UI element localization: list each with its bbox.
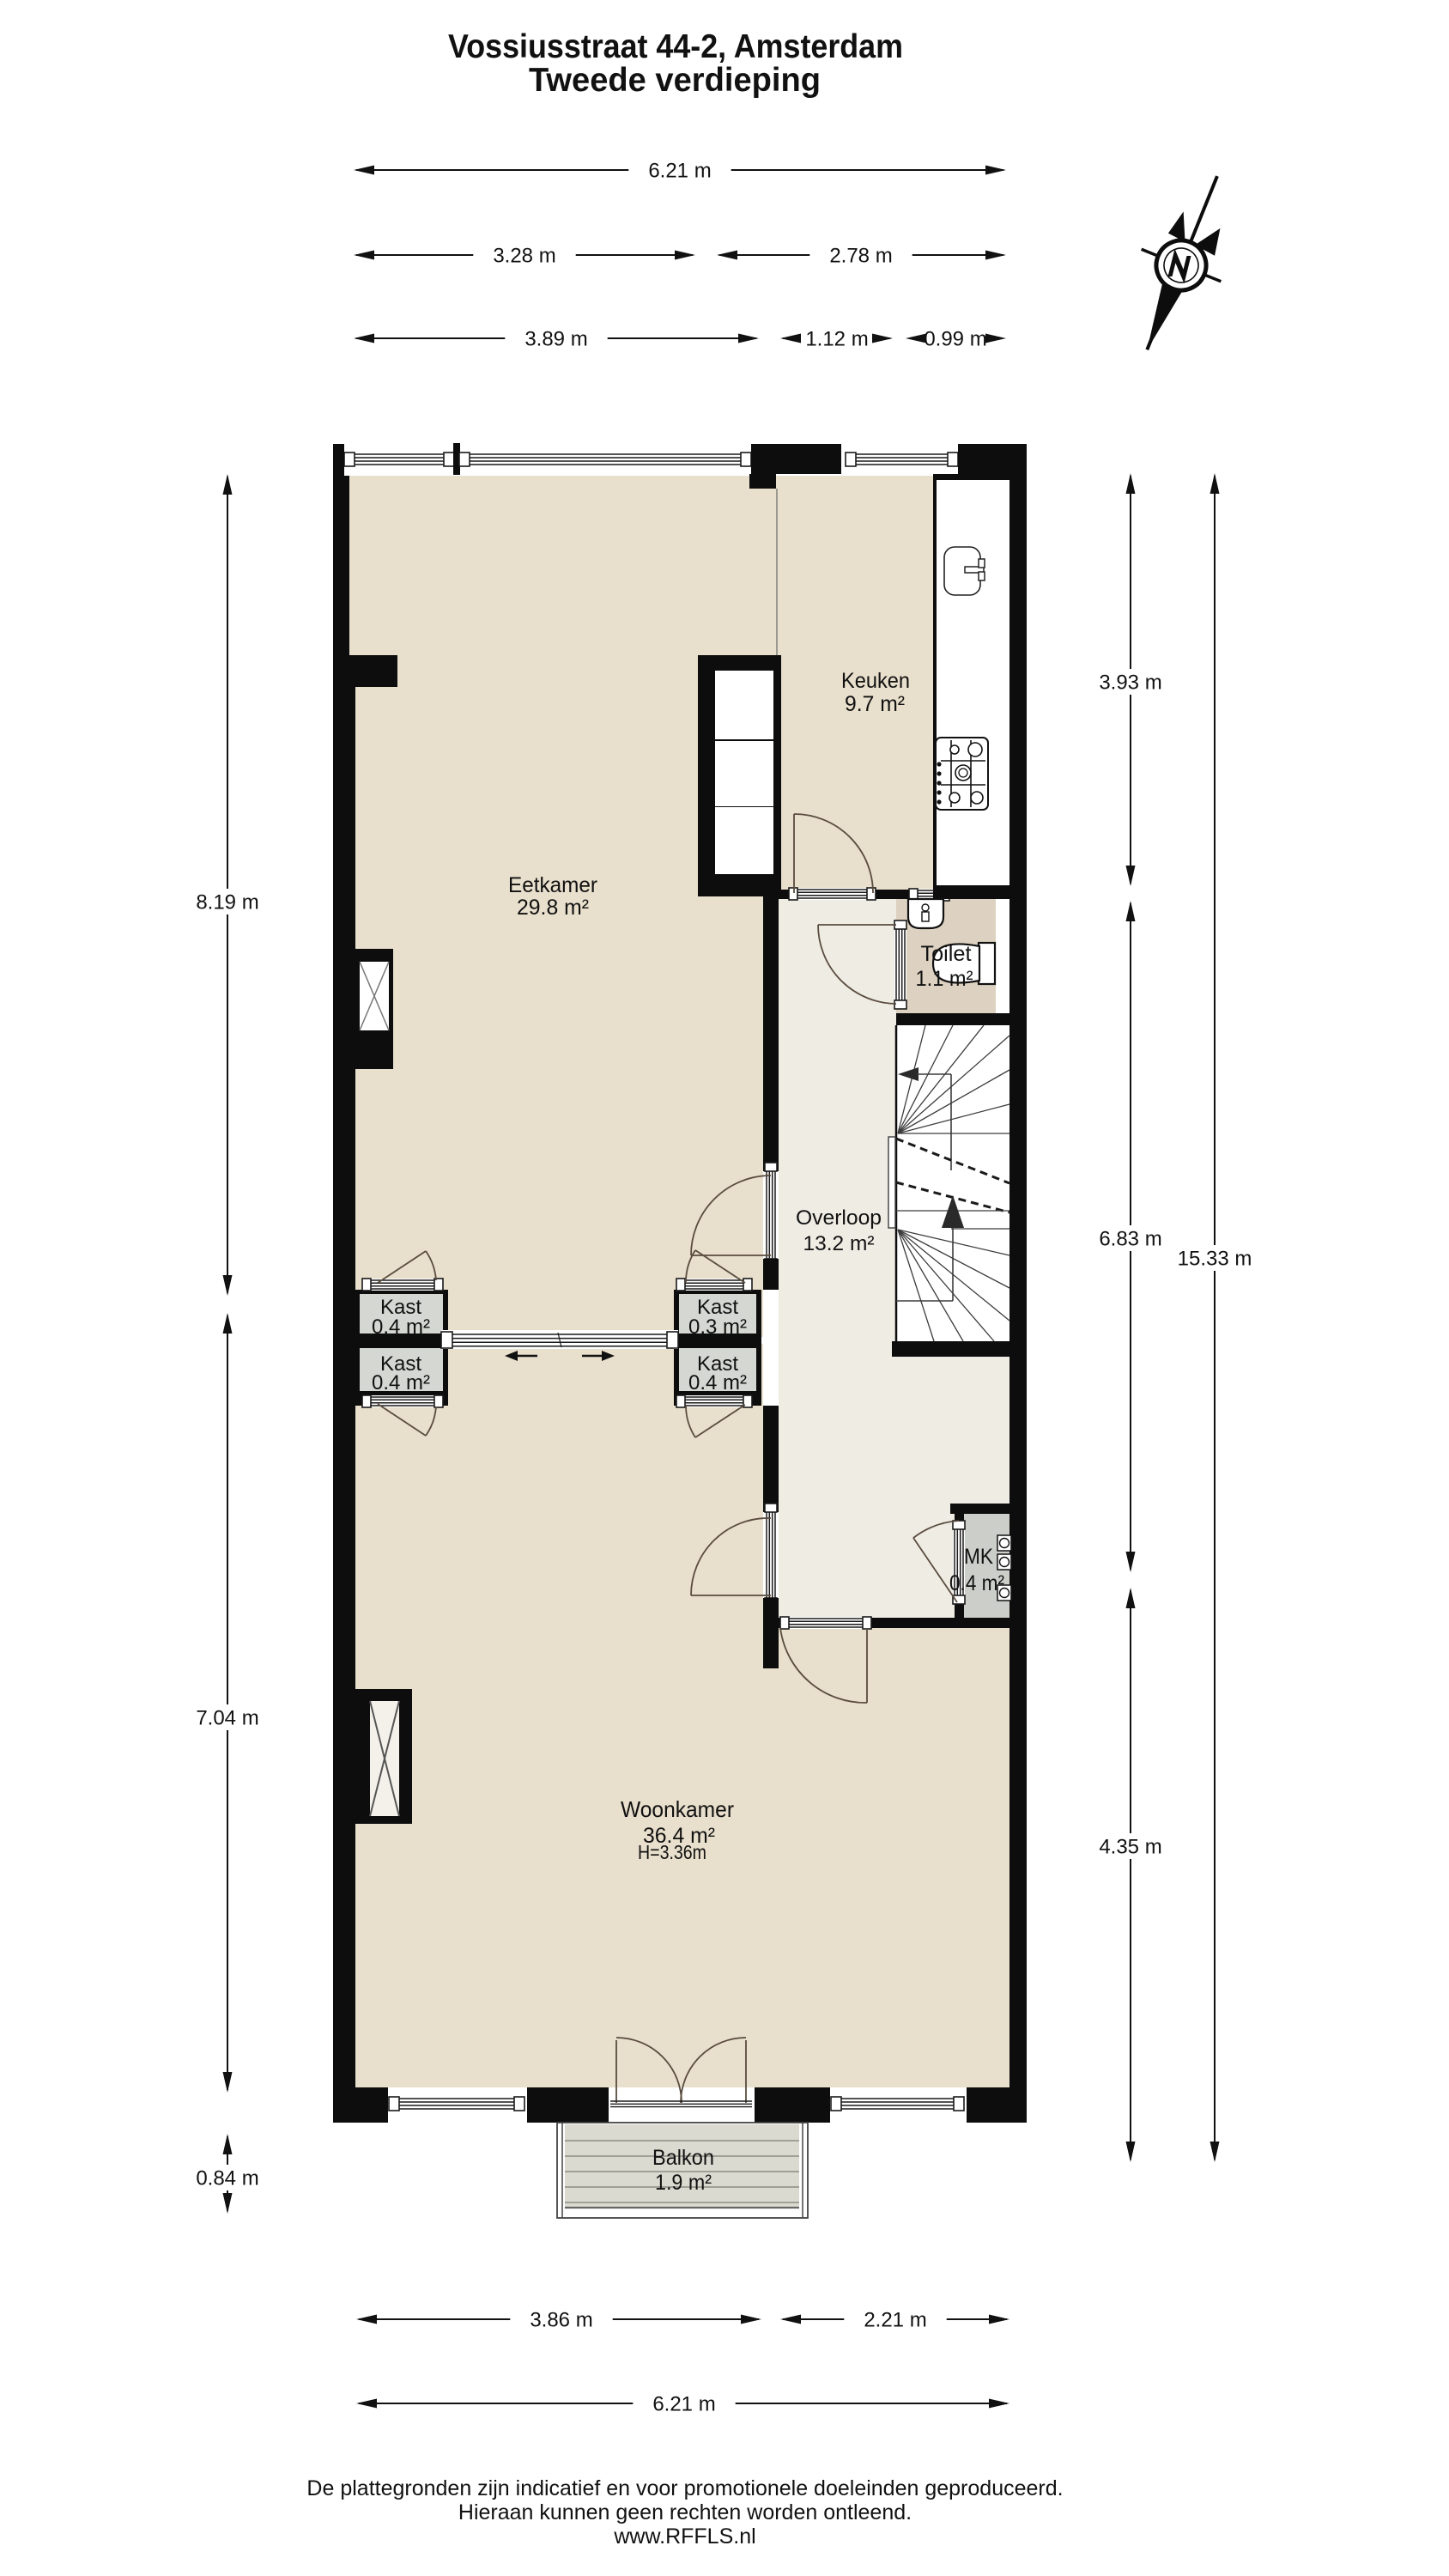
svg-text:8.19 m: 8.19 m (196, 890, 258, 914)
svg-text:Woonkamer: Woonkamer (621, 1796, 734, 1822)
svg-text:Eetkamer: Eetkamer (508, 873, 597, 897)
svg-text:1.9 m²: 1.9 m² (655, 2171, 712, 2195)
svg-text:3.86 m: 3.86 m (530, 2308, 592, 2331)
svg-text:6.83 m: 6.83 m (1099, 1227, 1161, 1250)
svg-text:13.2 m²: 13.2 m² (803, 1232, 875, 1255)
svg-text:6.21 m: 6.21 m (652, 2392, 715, 2415)
svg-text:0.4 m²: 0.4 m² (372, 1371, 430, 1394)
svg-text:0.4 m²: 0.4 m² (688, 1371, 747, 1394)
svg-text:2.78 m: 2.78 m (829, 244, 892, 267)
svg-text:Balkon: Balkon (652, 2146, 714, 2170)
svg-text:0.4 m²: 0.4 m² (949, 1571, 1004, 1595)
svg-text:1.1 m²: 1.1 m² (916, 967, 973, 991)
svg-text:Vossiusstraat 44-2, Amsterdam: Vossiusstraat 44-2, Amsterdam (448, 28, 903, 65)
svg-text:7.04 m: 7.04 m (196, 1706, 258, 1729)
svg-text:9.7 m²: 9.7 m² (845, 692, 905, 716)
svg-text:0.3 m²: 0.3 m² (688, 1315, 747, 1339)
svg-text:0.99 m: 0.99 m (924, 327, 986, 350)
svg-text:Hieraan kunnen geen rechten wo: Hieraan kunnen geen rechten worden ontle… (458, 2500, 912, 2524)
svg-text:3.93 m: 3.93 m (1099, 671, 1161, 694)
svg-text:Overloop: Overloop (796, 1206, 882, 1230)
svg-text:H=3.36m: H=3.36m (638, 1841, 706, 1863)
svg-text:Tweede verdieping: Tweede verdieping (529, 62, 821, 99)
svg-text:15.33 m: 15.33 m (1178, 1247, 1252, 1270)
svg-text:De plattegronden zijn indicati: De plattegronden zijn indicatief en voor… (306, 2476, 1063, 2500)
svg-text:0.4 m²: 0.4 m² (372, 1315, 430, 1339)
svg-text:MK: MK (964, 1545, 993, 1569)
svg-text:www.RFFLS.nl: www.RFFLS.nl (613, 2524, 755, 2549)
svg-text:2.21 m: 2.21 m (864, 2308, 926, 2331)
svg-text:1.12 m: 1.12 m (805, 327, 868, 350)
svg-text:Keuken: Keuken (841, 669, 910, 693)
svg-text:4.35 m: 4.35 m (1099, 1835, 1161, 1858)
svg-text:0.84 m: 0.84 m (196, 2166, 258, 2190)
svg-text:29.8 m²: 29.8 m² (517, 896, 589, 920)
svg-text:Toilet: Toilet (921, 942, 972, 966)
svg-text:6.21 m: 6.21 m (648, 159, 711, 182)
svg-text:3.89 m: 3.89 m (524, 327, 587, 350)
svg-text:3.28 m: 3.28 m (493, 244, 555, 267)
